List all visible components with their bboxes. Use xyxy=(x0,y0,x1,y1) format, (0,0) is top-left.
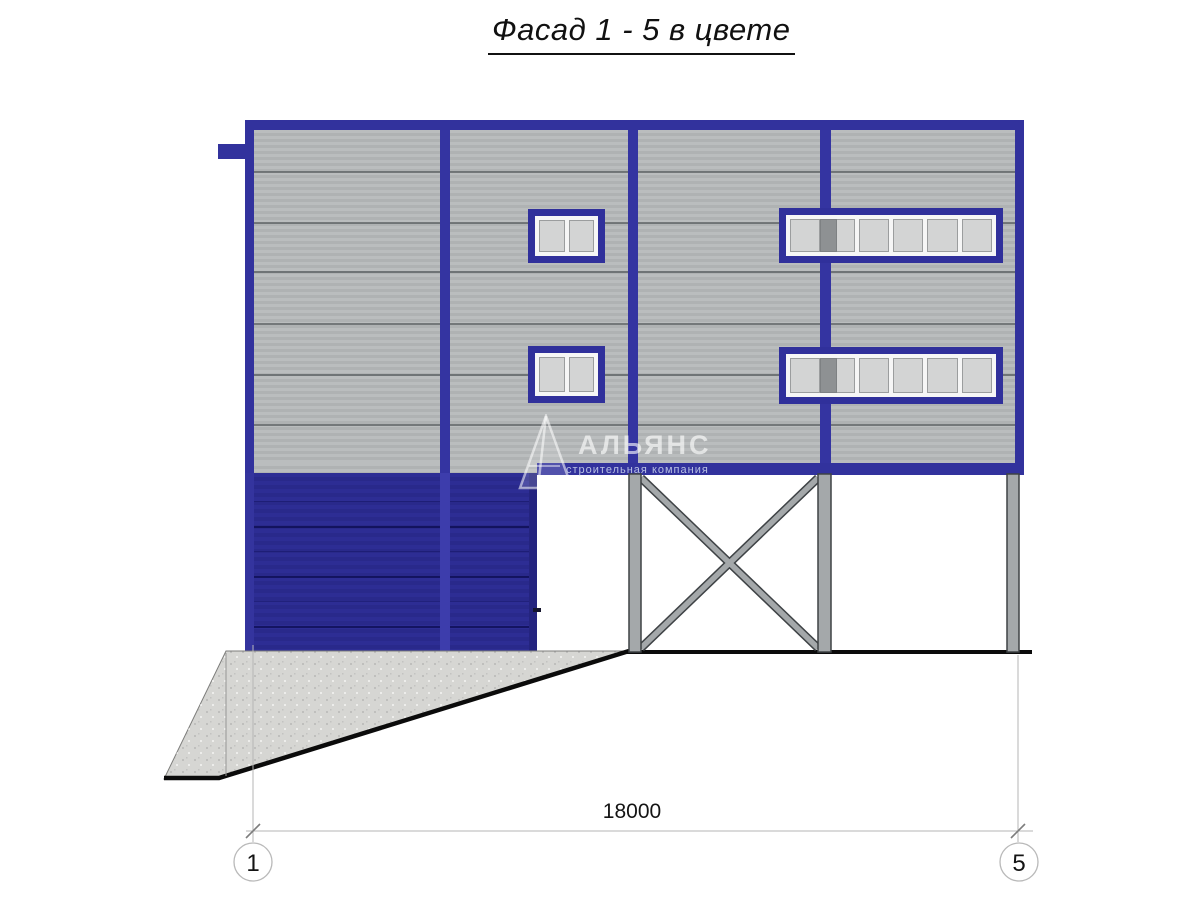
drawing-canvas: Фасад 1 - 5 в цвете xyxy=(0,0,1200,900)
column xyxy=(1007,474,1019,652)
axis-label-5: 5 xyxy=(1012,850,1025,877)
elevation-linework: 18000 1 5 xyxy=(0,0,1200,900)
column xyxy=(629,474,641,652)
dimension-value: 18000 xyxy=(603,800,661,823)
axis-label-1: 1 xyxy=(246,850,259,877)
concrete-ramp-texture xyxy=(164,651,629,779)
cross-bracing xyxy=(641,478,818,648)
column xyxy=(818,474,831,652)
